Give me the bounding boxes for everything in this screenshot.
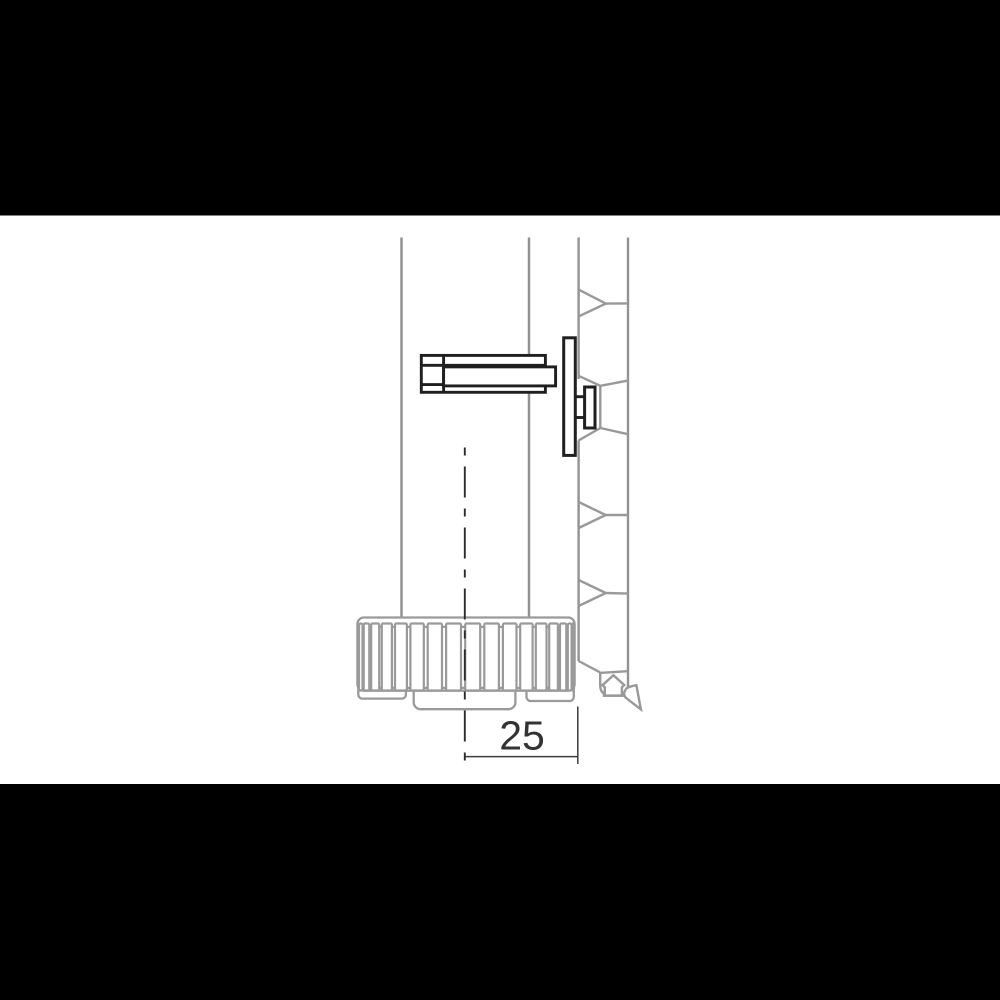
svg-text:25: 25 xyxy=(499,713,545,759)
